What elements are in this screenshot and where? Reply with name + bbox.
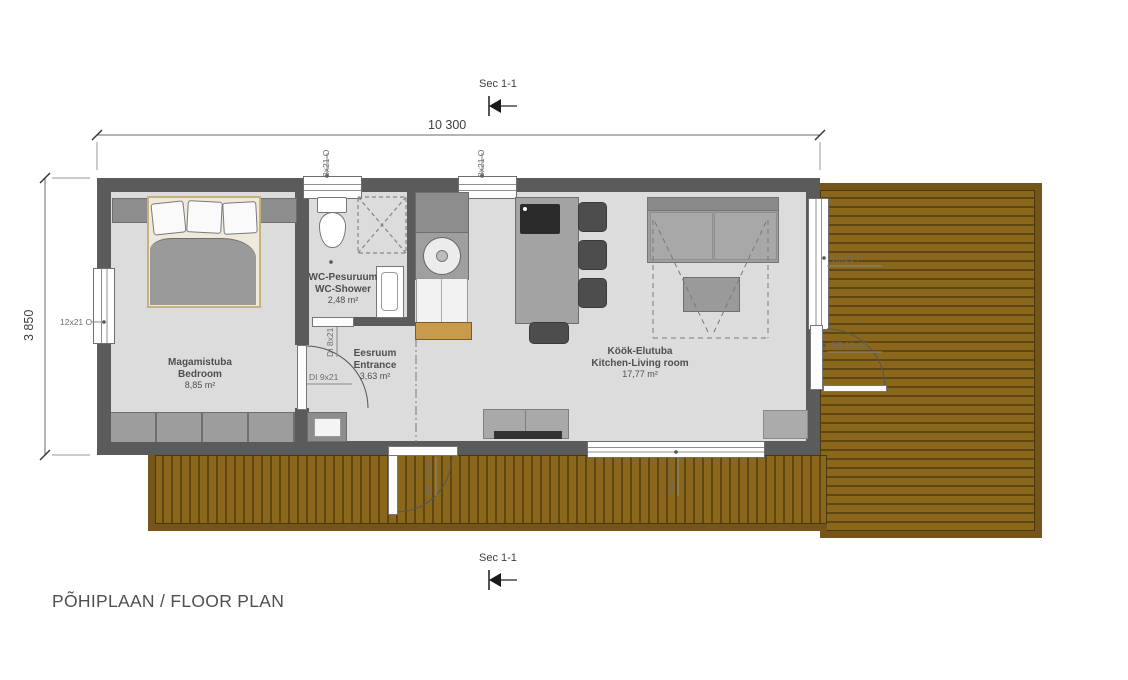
dimension-lines [45, 135, 820, 455]
room-area: 8,85 m² [140, 380, 260, 392]
window-label-south: 24x21 F [666, 465, 676, 496]
shower-enclosure [358, 197, 406, 253]
room-name-en: Bedroom [140, 369, 260, 381]
window-label-east: 16x21 F [831, 254, 862, 264]
room-area: 2,48 m² [293, 295, 393, 307]
section-marker-top [489, 96, 517, 116]
dimension-ticks [40, 130, 825, 460]
plan-title: PÕHIPLAAN / FLOOR PLAN [52, 591, 284, 612]
room-name-en: Entrance [325, 360, 425, 372]
room-name-en: WC-Shower [293, 284, 393, 296]
room-area: 17,77 m² [562, 369, 718, 381]
door-leaf-east-closed [810, 325, 823, 390]
door-label-east: DE 10x21 [831, 340, 868, 350]
window-label-top-right: 8x21 O [476, 150, 486, 177]
label-leaders [92, 153, 882, 496]
door-leaf-south [388, 455, 398, 515]
room-name-et: Köök-Elutuba [562, 346, 718, 358]
window-label-west: 12x21 O [60, 317, 92, 327]
dimension-height: 3 850 [22, 310, 36, 341]
room-name-et: Eesruum [325, 348, 425, 360]
annotation-overlay [0, 0, 1128, 680]
section-label-top: Sec 1-1 [479, 78, 517, 90]
door-label-bedroom: DI 9x21 [309, 372, 338, 382]
door-label-south: DE 10x21 [424, 459, 434, 496]
projection-guides [653, 220, 768, 338]
dimension-width: 10 300 [428, 118, 466, 132]
leader-dots [102, 174, 826, 454]
room-name-et: WC-Pesuruum [293, 272, 393, 284]
door-label-wc: DI 8x21 [325, 328, 335, 357]
door-leaf-bedroom [297, 345, 307, 410]
section-label-bottom: Sec 1-1 [479, 552, 517, 564]
room-name-en: Kitchen-Living room [562, 358, 718, 370]
room-area: 3,63 m² [325, 371, 425, 383]
room-label-living: Köök-Elutuba Kitchen-Living room 17,77 m… [562, 346, 718, 381]
door-threshold-south [388, 446, 458, 456]
room-name-et: Magamistuba [140, 357, 260, 369]
section-marker-bottom [489, 570, 517, 590]
room-label-entrance: Eesruum Entrance 3,63 m² [325, 348, 425, 383]
floor-plan-canvas: Sec 1-1 Sec 1-1 10 300 3 850 Magamistuba… [0, 0, 1128, 680]
room-label-bedroom: Magamistuba Bedroom 8,85 m² [140, 357, 260, 392]
door-leaf-east-open [823, 385, 887, 392]
room-label-wc: WC-Pesuruum WC-Shower 2,48 m² [293, 272, 393, 307]
window-label-top-left: 8x21 O [321, 150, 331, 177]
door-leaf-wc [312, 317, 354, 327]
